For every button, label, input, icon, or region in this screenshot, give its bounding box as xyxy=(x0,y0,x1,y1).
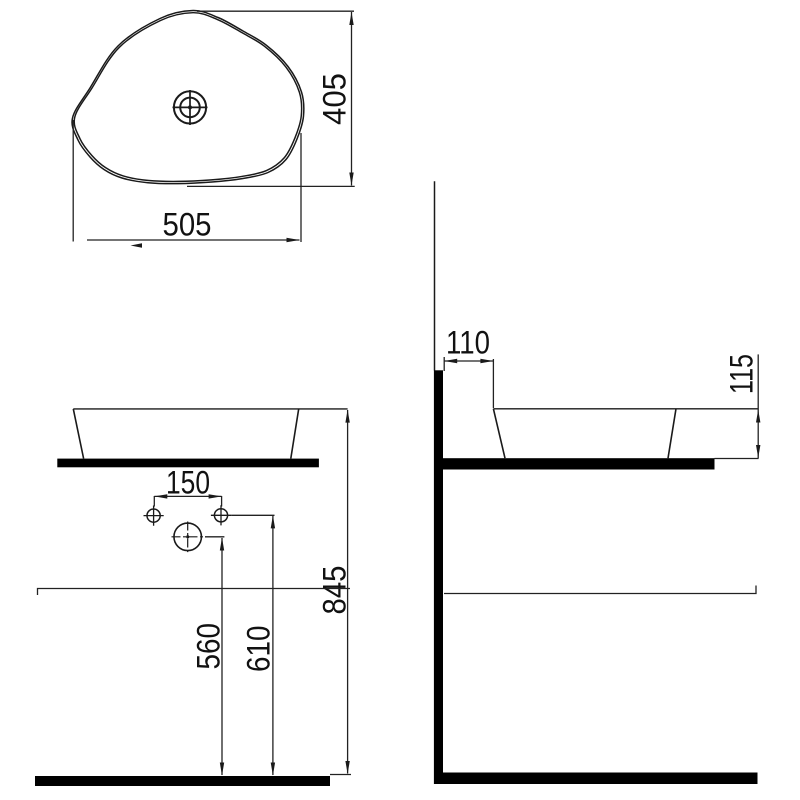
svg-text:150: 150 xyxy=(166,465,210,501)
svg-text:115: 115 xyxy=(724,354,760,394)
svg-text:610: 610 xyxy=(240,625,276,672)
svg-text:505: 505 xyxy=(163,207,212,243)
svg-text:560: 560 xyxy=(190,623,226,670)
svg-text:845: 845 xyxy=(317,566,353,615)
svg-text:110: 110 xyxy=(446,325,490,361)
svg-text:405: 405 xyxy=(317,73,353,125)
